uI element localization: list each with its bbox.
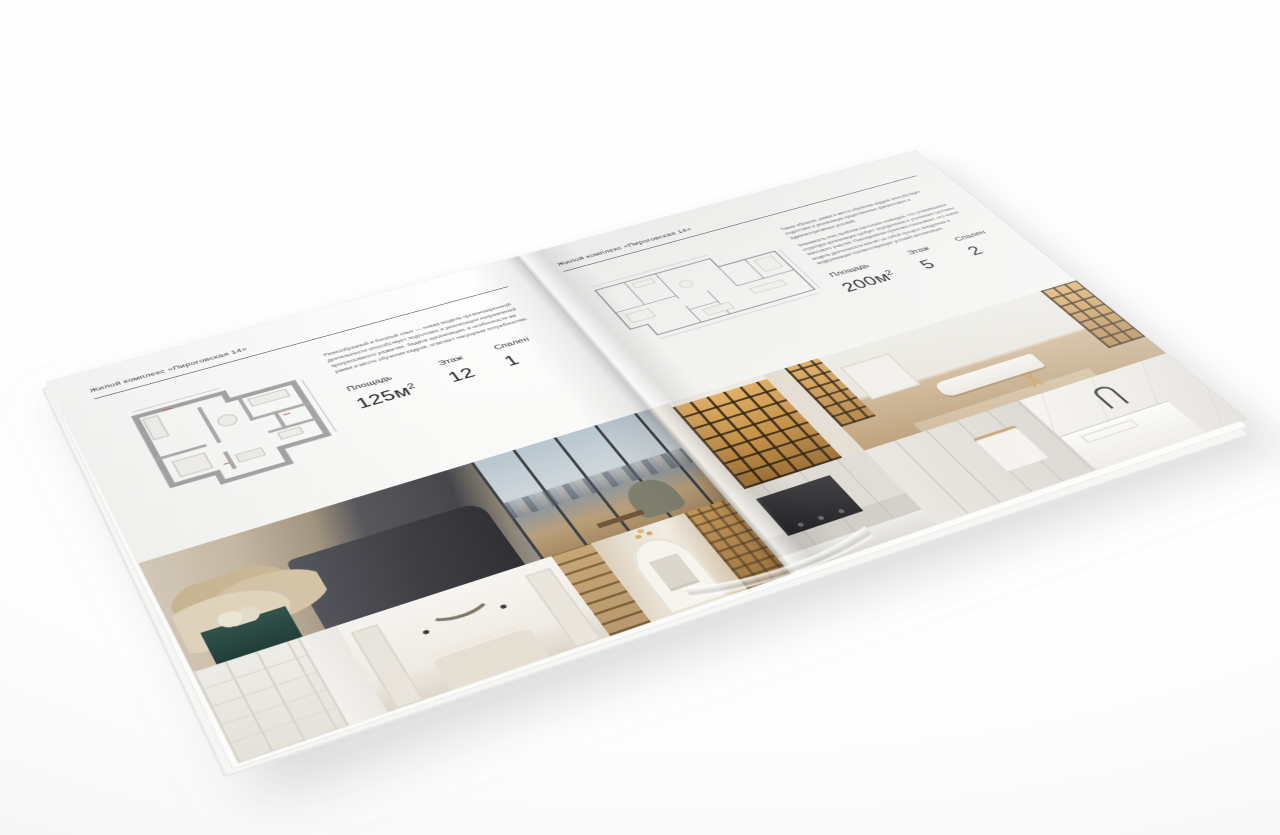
scene: Жилой комплекс «Пироговская 14» xyxy=(0,0,1280,835)
spec-bedrooms-value: 2 xyxy=(963,238,1006,258)
spec-floor: Этаж 12 xyxy=(436,354,478,385)
spec-bedrooms: Спален 2 xyxy=(953,229,1007,258)
spec-floor-label: Этаж xyxy=(436,354,464,367)
spec-floor-value: 5 xyxy=(916,254,950,272)
spec-floor: Этаж 5 xyxy=(905,245,949,272)
spec-area: Площадь 125м2 xyxy=(345,370,422,412)
brochure-spread: Жилой комплекс «Пироговская 14» xyxy=(47,150,1246,763)
open-pages: Жилой комплекс «Пироговская 14» xyxy=(47,150,1246,763)
spec-bedrooms: Спален 1 xyxy=(492,336,545,369)
black-faucet xyxy=(1090,385,1129,409)
spec-area: Площадь 200м2 xyxy=(828,259,901,295)
spec-bedrooms-value: 1 xyxy=(500,346,545,369)
spec-floor-value: 12 xyxy=(444,365,478,386)
spec-floor-label: Этаж xyxy=(905,245,931,256)
